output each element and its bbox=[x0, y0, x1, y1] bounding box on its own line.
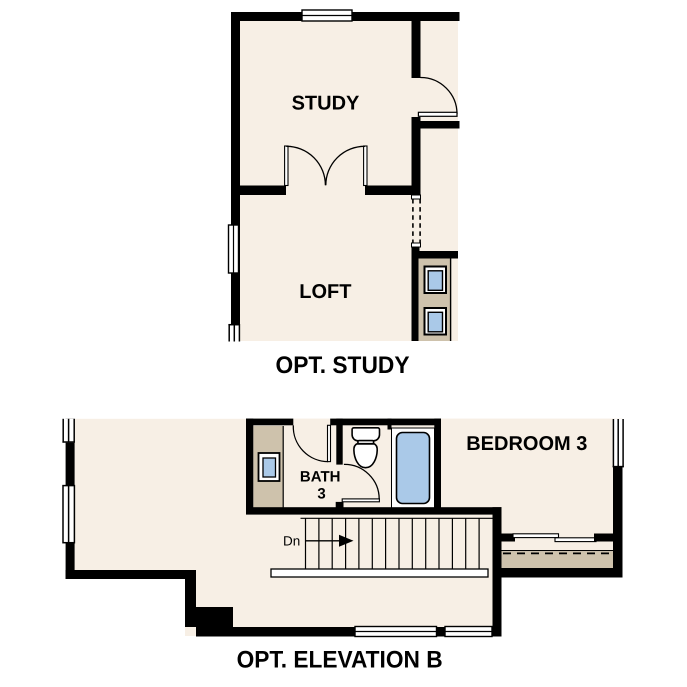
svg-text:STUDY: STUDY bbox=[292, 93, 360, 115]
svg-text:BATH: BATH bbox=[300, 468, 341, 485]
svg-text:OPT. STUDY: OPT. STUDY bbox=[276, 352, 410, 379]
svg-text:BEDROOM 3: BEDROOM 3 bbox=[466, 433, 587, 455]
svg-text:3: 3 bbox=[317, 486, 325, 503]
svg-text:LOFT: LOFT bbox=[299, 281, 351, 303]
svg-text:Dn: Dn bbox=[283, 533, 300, 548]
svg-text:OPT. ELEVATION B: OPT. ELEVATION B bbox=[237, 647, 443, 674]
